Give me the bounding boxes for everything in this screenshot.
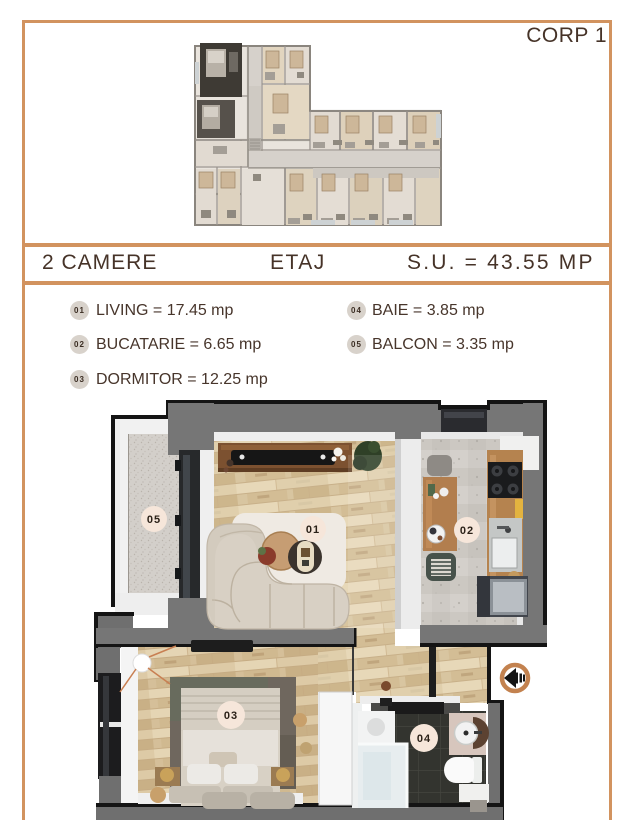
- svg-text:05: 05: [147, 514, 161, 526]
- svg-text:01: 01: [306, 524, 320, 536]
- svg-text:04: 04: [417, 733, 431, 745]
- svg-text:02: 02: [460, 525, 474, 537]
- svg-text:03: 03: [224, 710, 238, 722]
